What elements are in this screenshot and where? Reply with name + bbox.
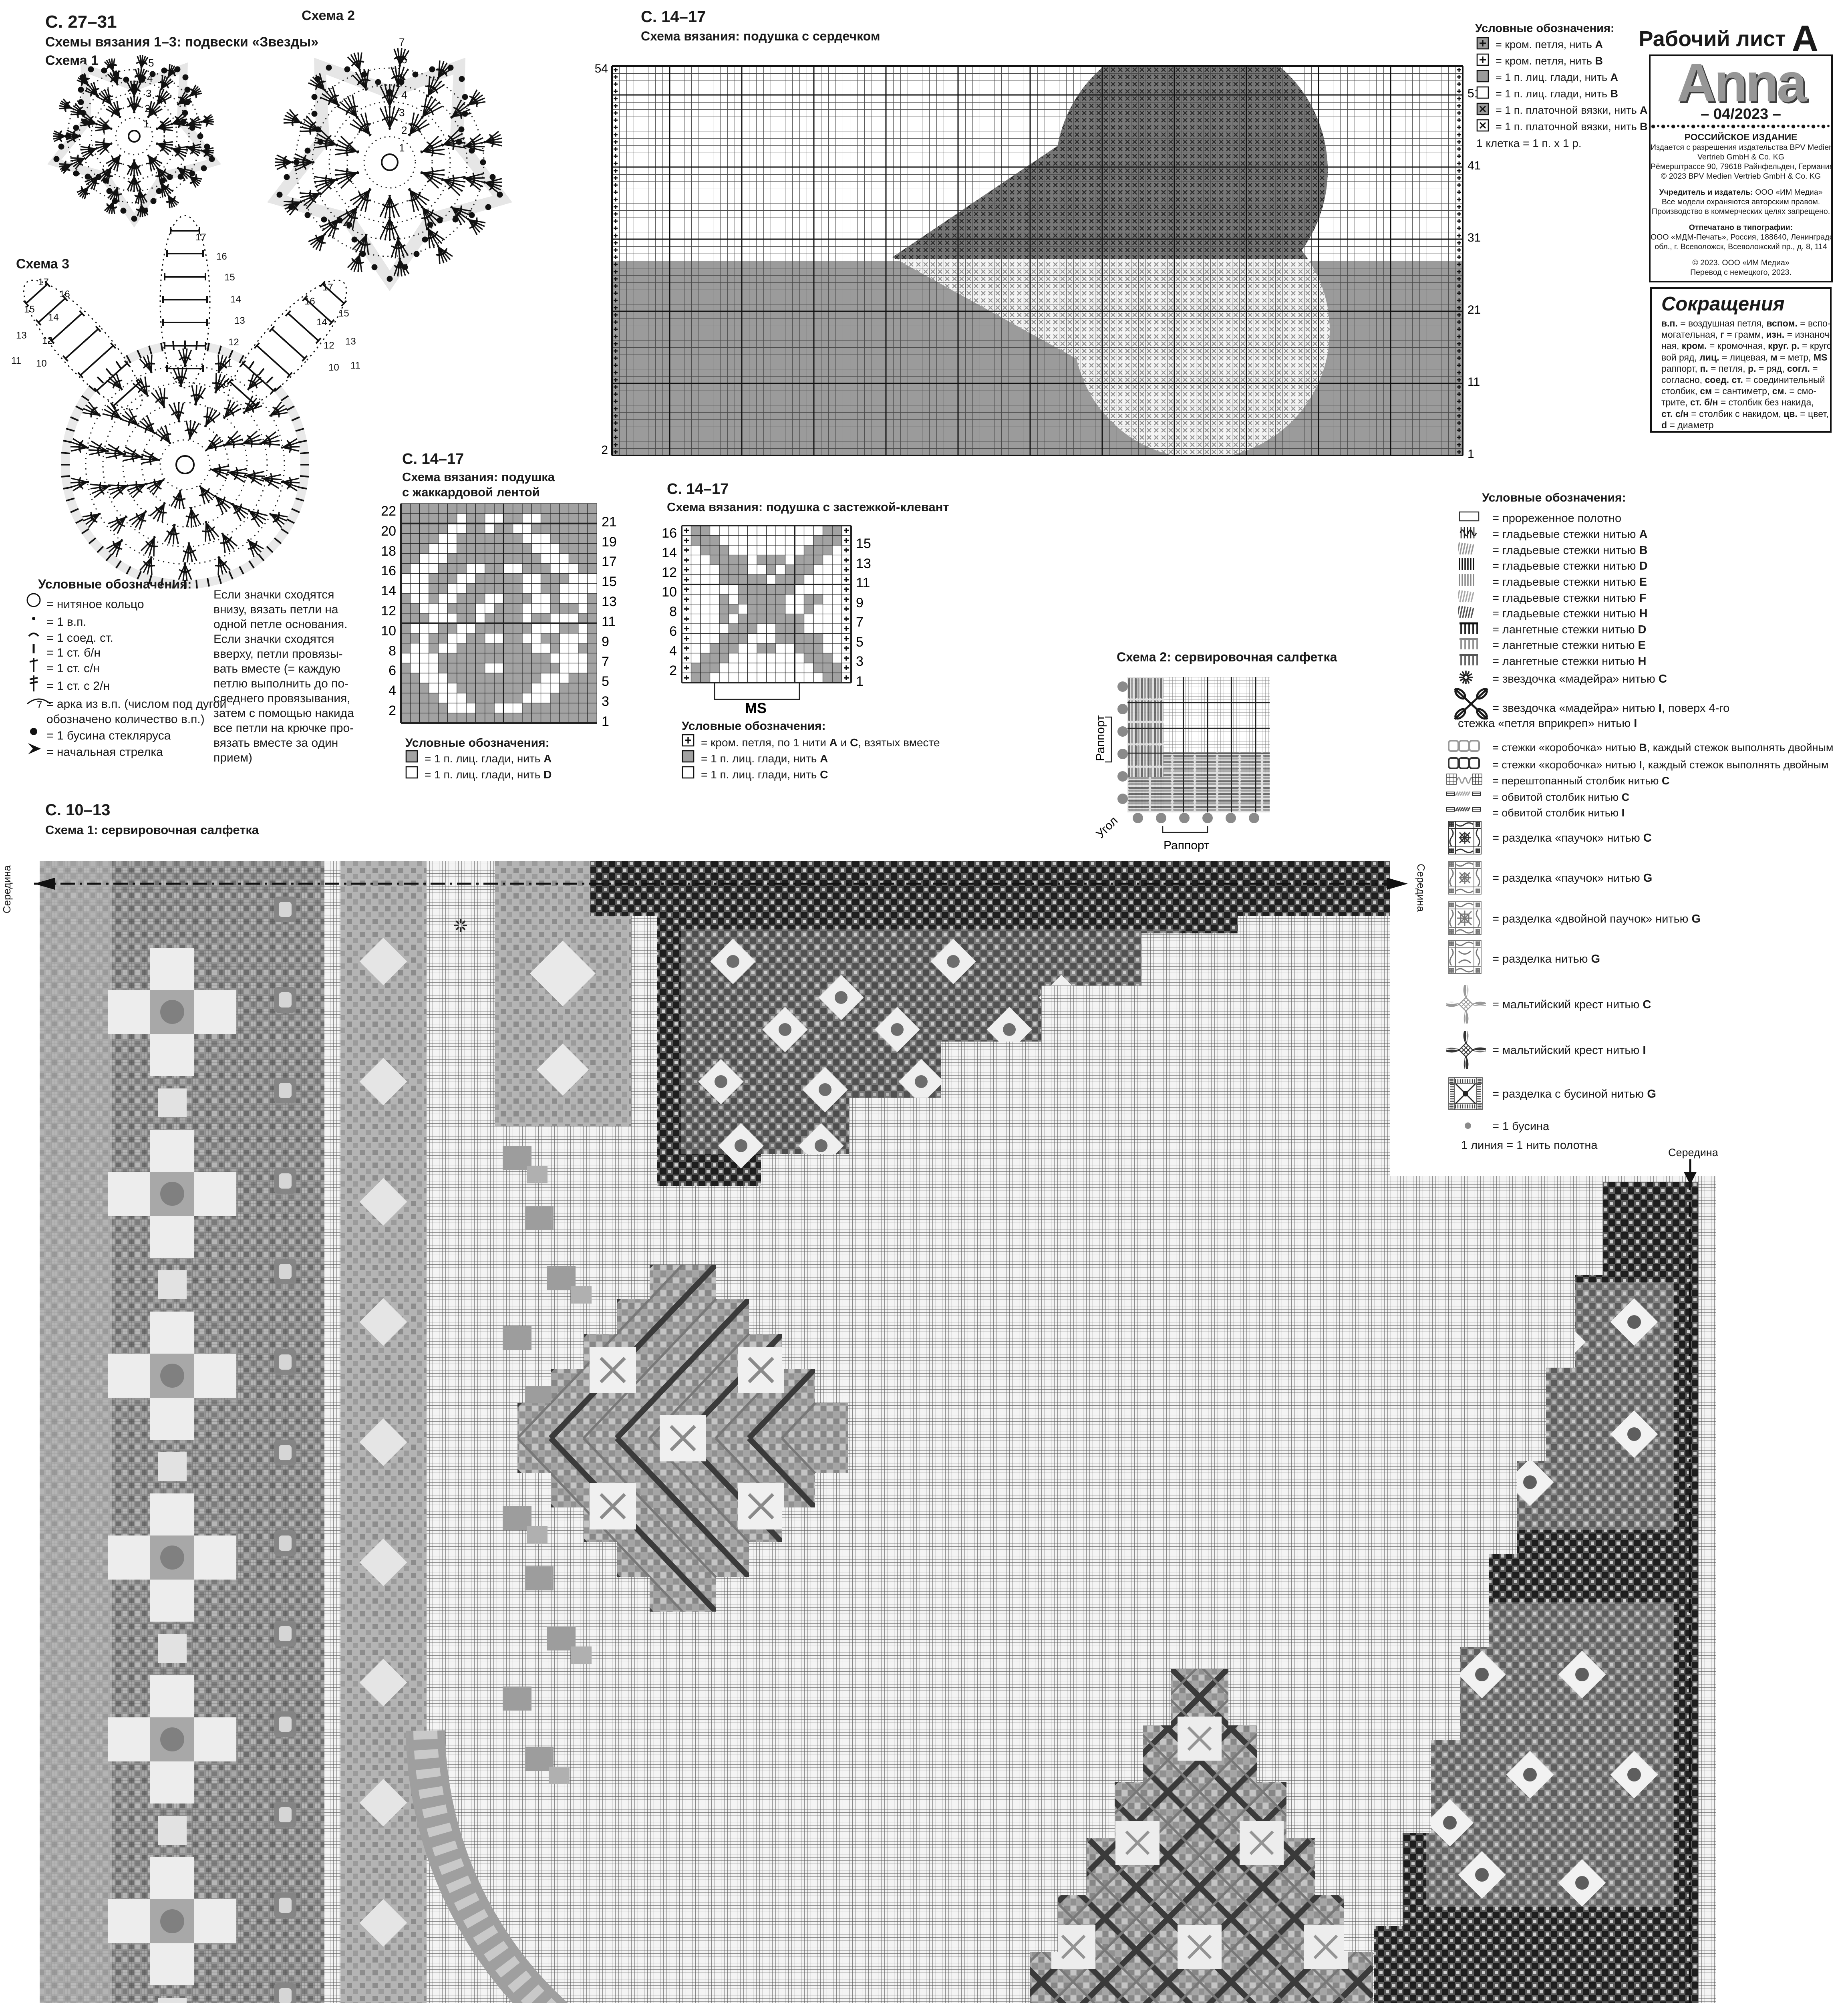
svg-text:Угол: Угол [1095,814,1120,841]
svg-text:14: 14 [230,294,241,305]
svg-text:13: 13 [856,556,871,571]
svg-text:12: 12 [42,335,53,346]
svg-text:8: 8 [389,643,396,659]
svg-text:2: 2 [401,124,407,136]
svg-text:11: 11 [350,360,360,371]
svg-text:2: 2 [669,663,677,678]
svg-text:3: 3 [602,694,609,709]
svg-text:2: 2 [601,443,608,457]
svg-text:10: 10 [662,584,677,600]
svg-text:2: 2 [145,103,150,115]
svg-text:16: 16 [216,251,227,262]
svg-text:15: 15 [338,308,349,319]
svg-text:10: 10 [381,623,396,639]
svg-text:17: 17 [195,232,206,243]
svg-text:3: 3 [146,87,151,99]
svg-text:12: 12 [662,565,677,580]
svg-text:15: 15 [856,536,871,551]
svg-text:19: 19 [602,534,617,550]
svg-text:21: 21 [1468,303,1481,316]
svg-text:13: 13 [345,336,356,347]
svg-text:9: 9 [602,634,609,649]
svg-text:10: 10 [328,362,339,373]
svg-text:15: 15 [602,574,617,589]
svg-text:17: 17 [322,282,333,293]
svg-text:14: 14 [381,583,396,598]
svg-text:18: 18 [381,544,396,559]
svg-text:6: 6 [401,54,407,66]
svg-text:11: 11 [602,614,616,629]
svg-text:5: 5 [148,57,154,69]
svg-text:20: 20 [381,524,396,539]
svg-text:6: 6 [669,624,677,639]
svg-text:17: 17 [602,554,617,569]
svg-text:41: 41 [1468,159,1481,172]
svg-text:12: 12 [324,340,334,351]
svg-text:21: 21 [602,514,617,530]
svg-text:12: 12 [228,337,239,348]
svg-text:10: 10 [218,379,229,389]
svg-text:4: 4 [389,683,396,698]
svg-text:13: 13 [234,315,245,326]
svg-text:9: 9 [856,595,864,611]
svg-text:1: 1 [602,714,609,729]
svg-text:14: 14 [316,317,327,328]
svg-text:14: 14 [662,545,677,560]
svg-text:5: 5 [602,674,609,689]
svg-text:8: 8 [669,604,677,619]
svg-text:5: 5 [856,635,864,650]
svg-text:54: 54 [595,62,608,75]
svg-text:11: 11 [11,355,21,366]
svg-text:15: 15 [224,272,235,283]
svg-text:7: 7 [602,654,609,669]
svg-text:6: 6 [389,663,396,678]
svg-text:4: 4 [669,643,677,659]
svg-text:12: 12 [381,603,396,619]
svg-text:16: 16 [381,563,396,578]
svg-text:31: 31 [1468,231,1481,244]
svg-text:3: 3 [399,107,405,119]
svg-text:11: 11 [222,358,232,369]
svg-text:1: 1 [399,142,405,154]
svg-text:1: 1 [143,118,149,130]
svg-text:7: 7 [399,36,405,48]
svg-text:5: 5 [399,71,405,83]
svg-text:13: 13 [602,594,617,609]
svg-text:MS: MS [745,700,767,716]
svg-text:7: 7 [856,615,864,630]
svg-text:4: 4 [401,89,407,101]
svg-text:1: 1 [1468,447,1474,461]
svg-text:15: 15 [24,304,35,315]
svg-text:16: 16 [662,526,677,541]
svg-text:2: 2 [389,703,396,718]
svg-text:7: 7 [37,699,42,709]
svg-text:14: 14 [48,312,59,323]
svg-text:11: 11 [1468,375,1480,389]
svg-text:10: 10 [36,358,47,369]
svg-text:11: 11 [856,575,870,590]
svg-text:17: 17 [38,277,49,288]
svg-text:22: 22 [381,504,396,519]
svg-text:4: 4 [147,72,153,84]
svg-text:3: 3 [856,654,864,669]
svg-text:13: 13 [16,330,27,341]
svg-text:16: 16 [304,296,315,307]
svg-text:Раппорт: Раппорт [1095,715,1107,761]
svg-text:16: 16 [59,289,70,300]
svg-text:1: 1 [856,674,864,689]
